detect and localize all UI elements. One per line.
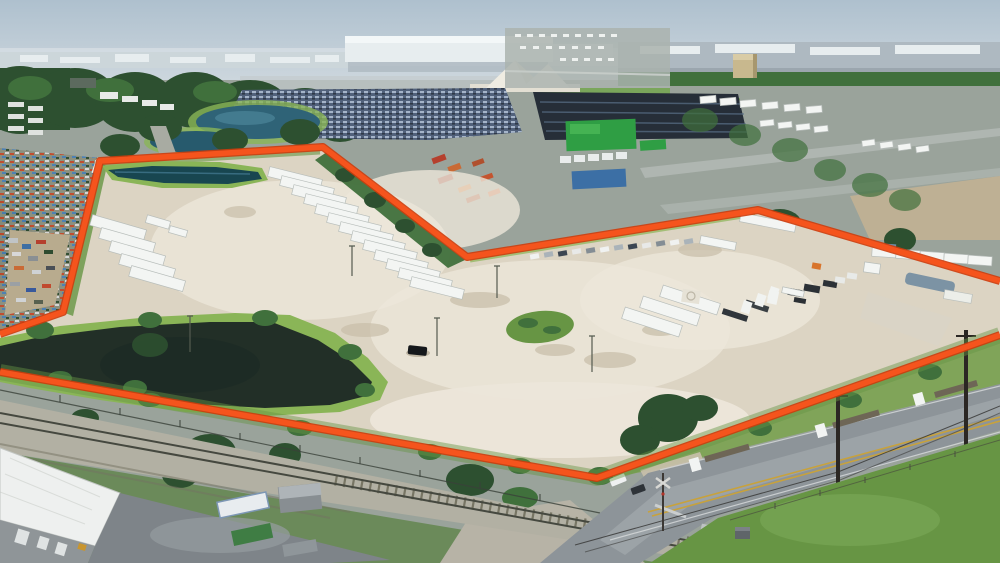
- aerial-photo: [0, 0, 1000, 563]
- distant-warehouse-band: [0, 52, 350, 68]
- aerial-photo-canvas: [0, 0, 1000, 563]
- blue-containers: [560, 152, 627, 189]
- white-truck-yard: [505, 28, 670, 88]
- east-warehouse-band: [618, 42, 1000, 86]
- helipad-marking: [681, 289, 701, 304]
- tan-tower-building: [733, 54, 757, 78]
